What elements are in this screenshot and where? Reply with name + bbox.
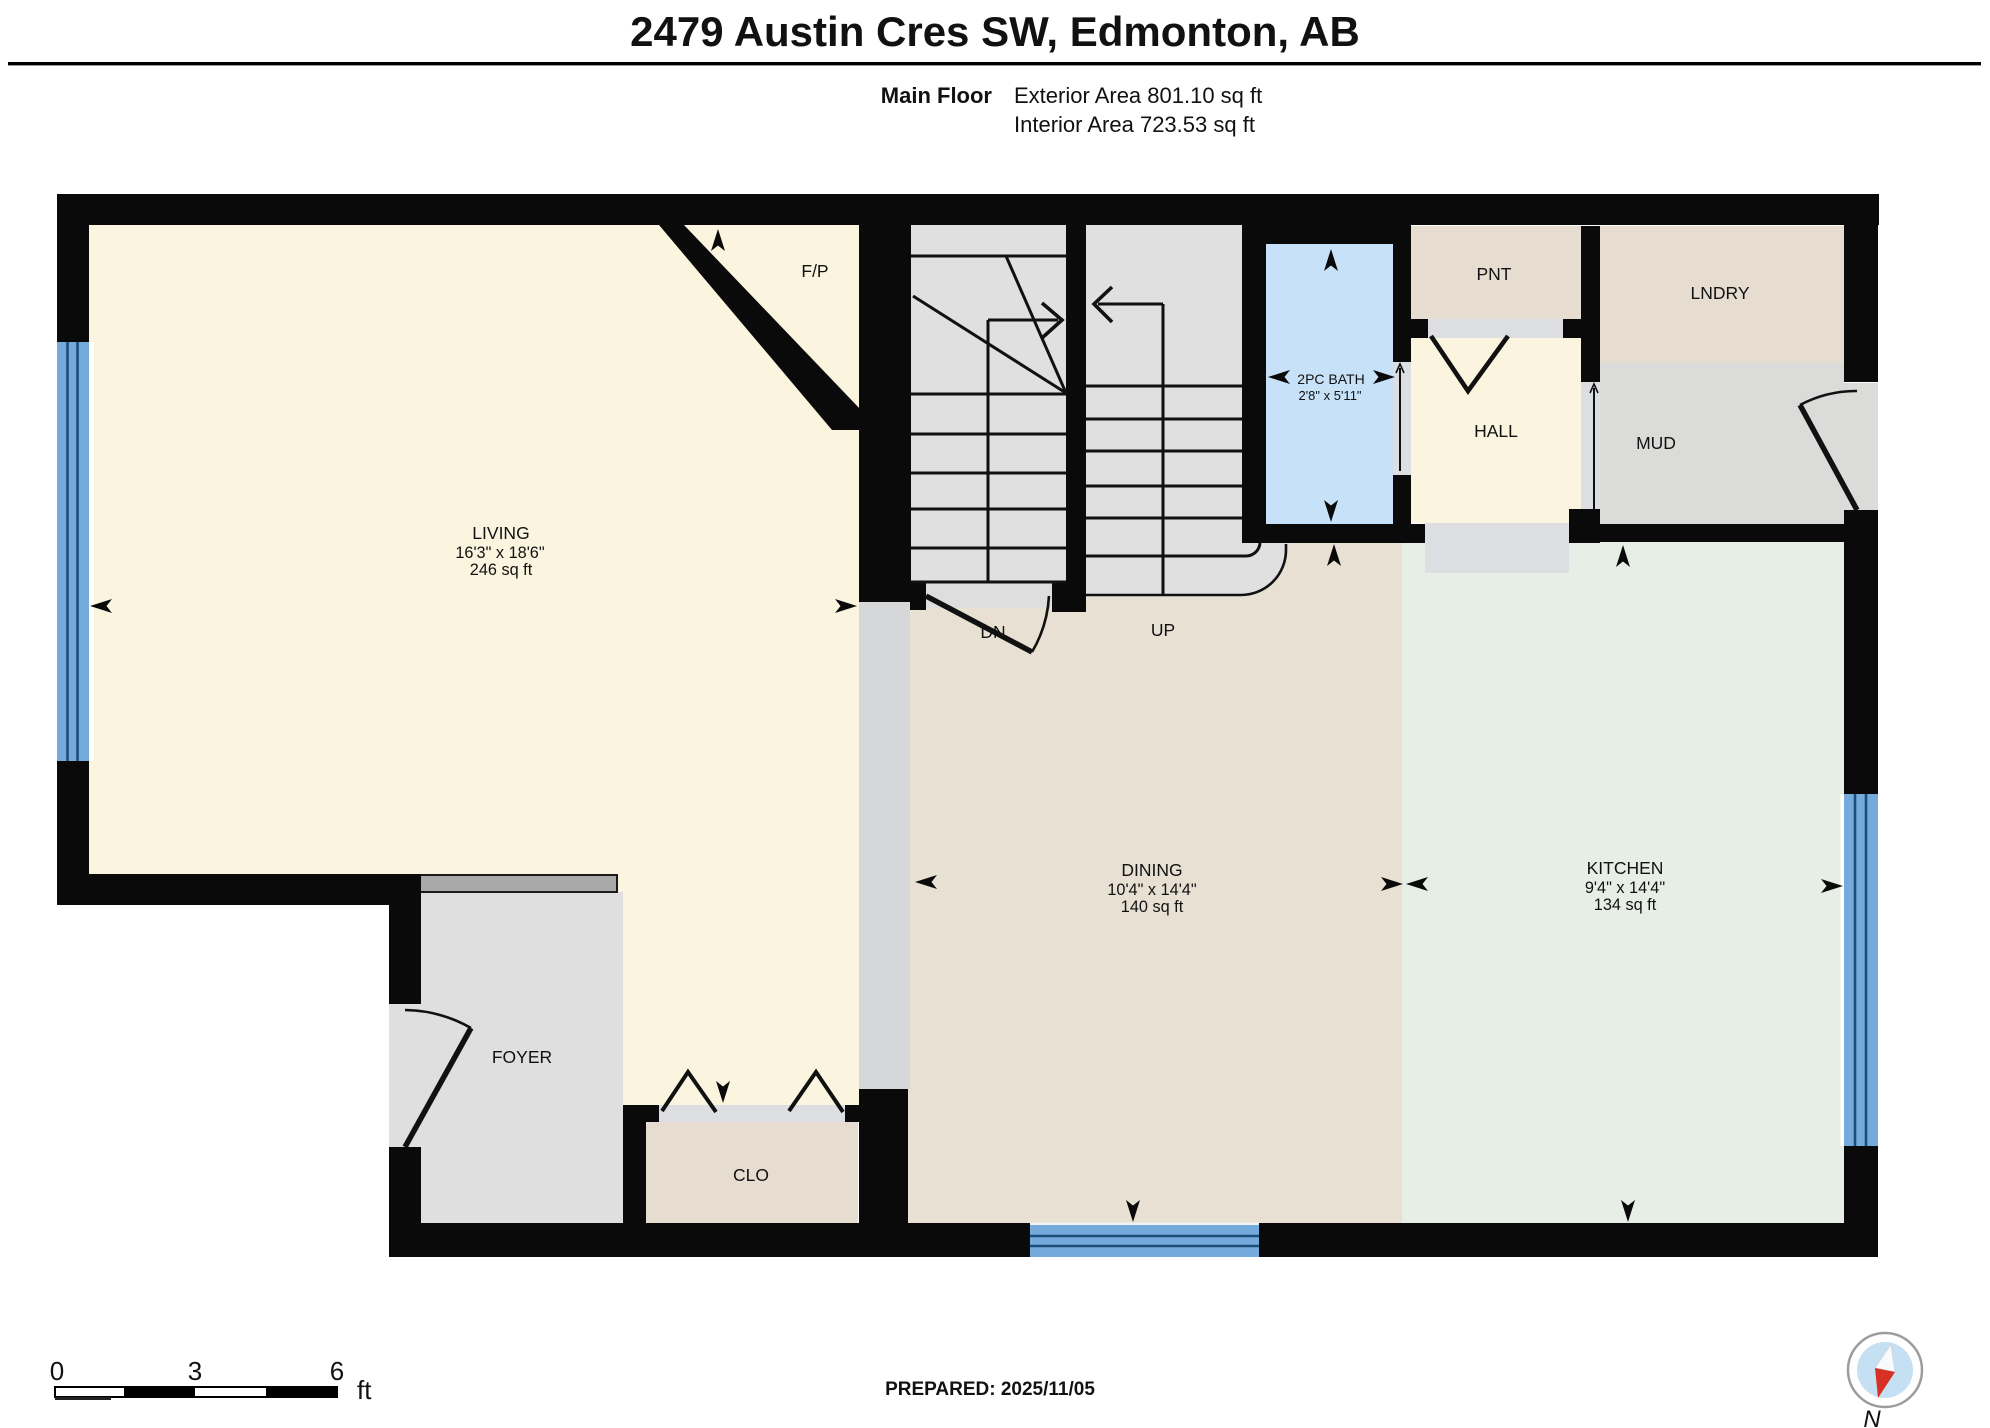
svg-text:PNT: PNT [1477,264,1512,284]
svg-text:MUD: MUD [1636,433,1676,453]
svg-text:N: N [1863,1406,1881,1428]
svg-text:10'4" x 14'4": 10'4" x 14'4" [1107,881,1197,899]
svg-text:ft: ft [357,1375,372,1405]
svg-text:16'3" x 18'6": 16'3" x 18'6" [455,544,545,562]
svg-text:Exterior Area 801.10 sq ft: Exterior Area 801.10 sq ft [1014,83,1262,108]
svg-text:0: 0 [50,1356,64,1386]
svg-text:UP: UP [1151,620,1175,640]
svg-text:DINING: DINING [1121,860,1182,880]
svg-text:134 sq ft: 134 sq ft [1594,896,1657,914]
svg-text:LIVING: LIVING [472,523,529,543]
svg-text:2479 Austin Cres SW, Edmonton,: 2479 Austin Cres SW, Edmonton, AB [630,8,1360,55]
svg-text:CLO: CLO [733,1165,769,1185]
svg-text:DN: DN [980,622,1005,642]
svg-text:Interior Area 723.53 sq ft: Interior Area 723.53 sq ft [1014,112,1255,137]
svg-text:3: 3 [188,1356,202,1386]
svg-text:PREPARED: 2025/11/05: PREPARED: 2025/11/05 [885,1379,1095,1400]
svg-text:LNDRY: LNDRY [1690,283,1749,303]
svg-text:2PC BATH: 2PC BATH [1297,371,1364,387]
svg-text:KITCHEN: KITCHEN [1587,858,1664,878]
svg-text:140 sq ft: 140 sq ft [1121,898,1184,916]
svg-text:2'8" x 5'11": 2'8" x 5'11" [1298,388,1361,403]
svg-text:F/P: F/P [801,261,828,281]
svg-text:9'4" x 14'4": 9'4" x 14'4" [1585,879,1665,897]
svg-text:Main Floor: Main Floor [881,83,993,108]
svg-text:6: 6 [330,1356,344,1386]
svg-text:FOYER: FOYER [492,1047,552,1067]
svg-text:246 sq ft: 246 sq ft [470,561,533,579]
svg-text:HALL: HALL [1474,421,1518,441]
